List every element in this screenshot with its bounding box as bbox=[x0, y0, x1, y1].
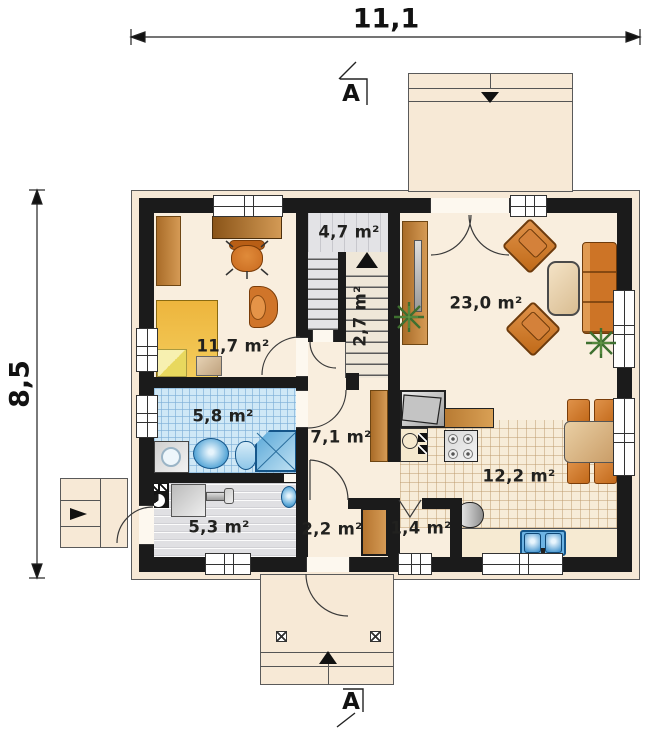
porch-step-line bbox=[260, 652, 394, 653]
side-stoop bbox=[60, 478, 128, 548]
window-bedroom-top bbox=[213, 195, 283, 217]
stair-edge-line bbox=[345, 342, 346, 378]
utility-sink bbox=[281, 486, 297, 508]
porch-post-icon bbox=[276, 631, 287, 642]
boiler-pipe-end bbox=[224, 488, 234, 504]
dining-table bbox=[564, 421, 620, 463]
room-label-staircase: 2,7 m² bbox=[351, 285, 370, 346]
stoop-step-line bbox=[60, 526, 100, 527]
terrace-divider-line bbox=[490, 73, 491, 88]
room-label-pantry: 1,4 m² bbox=[390, 519, 451, 538]
wall-bathroom-utility bbox=[154, 473, 296, 483]
porch-post-icon bbox=[370, 631, 381, 642]
toilet bbox=[235, 441, 257, 470]
kitchen-worktop bbox=[444, 408, 494, 428]
sink-bowl bbox=[545, 533, 562, 553]
wardrobe bbox=[156, 216, 181, 286]
room-label-bedroom: 11,7 m² bbox=[197, 337, 270, 356]
burner-icon bbox=[448, 434, 458, 444]
window-bathroom-left bbox=[136, 395, 158, 438]
burner-icon bbox=[463, 434, 473, 444]
desk bbox=[212, 216, 282, 239]
wall-exterior-right bbox=[617, 198, 632, 572]
wall-pantry-top bbox=[422, 498, 450, 509]
dining-chair bbox=[567, 399, 590, 423]
dimension-height: 8,5 bbox=[5, 360, 36, 408]
door-opening-terrace bbox=[430, 198, 510, 213]
burner-icon bbox=[463, 449, 473, 459]
nightstand bbox=[196, 356, 222, 376]
boiler bbox=[171, 484, 206, 517]
burner-icon bbox=[448, 449, 458, 459]
room-label-stair-hall: 4,7 m² bbox=[318, 223, 379, 242]
washbasin bbox=[193, 438, 229, 469]
wall-entry-top bbox=[348, 498, 398, 509]
door-opening-entrance bbox=[306, 557, 350, 572]
desk-chair bbox=[231, 245, 263, 272]
coffee-table bbox=[547, 261, 580, 316]
wall-pantry-right bbox=[450, 498, 462, 557]
window-kitchen-bottom bbox=[482, 553, 563, 575]
section-letter-bottom: A bbox=[342, 689, 360, 715]
section-letter-top: A bbox=[342, 81, 360, 107]
armchair-seat bbox=[250, 295, 266, 320]
boiler-pipe bbox=[206, 492, 226, 501]
window-utility-bottom bbox=[205, 553, 251, 575]
window-living-right bbox=[613, 290, 635, 368]
hob-plate-icon bbox=[418, 433, 427, 442]
counter-sink bbox=[402, 433, 418, 449]
fridge bbox=[400, 390, 446, 428]
hob-plate-icon bbox=[418, 445, 427, 454]
bed-blanket-fold bbox=[157, 349, 187, 377]
window-living-top bbox=[510, 195, 547, 217]
door-opening-bathroom bbox=[296, 390, 308, 428]
dining-chair bbox=[567, 460, 590, 484]
opening-bathroom-utility bbox=[284, 474, 296, 482]
hall-cabinet bbox=[370, 390, 388, 462]
room-label-utility-room: 5,3 m² bbox=[188, 518, 249, 537]
window-pantry-bottom bbox=[398, 553, 432, 575]
dimension-width: 11,1 bbox=[353, 4, 420, 35]
terrace-step-line bbox=[408, 101, 573, 102]
wall-stub-stair bbox=[346, 373, 359, 390]
entrance-porch bbox=[260, 574, 394, 685]
door-opening-side bbox=[139, 505, 154, 545]
floor-plan: 11,7 m² 4,7 m² 2,7 m² 23,0 m² 5,8 m² 7,1… bbox=[0, 0, 660, 746]
sink-bowl bbox=[524, 533, 541, 553]
room-label-hall: 7,1 m² bbox=[310, 428, 371, 447]
room-label-kitchen-dining: 12,2 m² bbox=[483, 467, 556, 486]
room-label-living-room: 23,0 m² bbox=[450, 294, 523, 313]
stoop-divider-line bbox=[100, 478, 101, 548]
room-label-bathroom: 5,8 m² bbox=[192, 407, 253, 426]
cabinet-glass-panel bbox=[414, 240, 422, 312]
window-bedroom-left bbox=[136, 328, 158, 372]
wall-interior-vertical-2 bbox=[388, 213, 400, 462]
window-dining-right bbox=[613, 398, 635, 476]
stairs-down-flight bbox=[308, 252, 338, 330]
stair-stringer-wall bbox=[338, 252, 346, 342]
wall-bedroom-bathroom bbox=[154, 377, 296, 388]
door-opening-stairs bbox=[312, 330, 334, 342]
porch-step-line bbox=[260, 666, 394, 667]
door-opening-bedroom bbox=[296, 337, 308, 377]
entry-wardrobe bbox=[361, 508, 388, 556]
room-label-entry: 2,2 m² bbox=[301, 520, 362, 539]
terrace-top bbox=[408, 73, 573, 192]
washer-door-icon bbox=[161, 447, 181, 467]
stoop-step-line bbox=[60, 500, 100, 501]
porch-divider-line bbox=[328, 652, 329, 685]
vent-icon bbox=[160, 484, 167, 491]
wall-interior-vertical-1 bbox=[296, 213, 308, 557]
terrace-step-line bbox=[408, 88, 573, 89]
sofa bbox=[582, 242, 617, 334]
